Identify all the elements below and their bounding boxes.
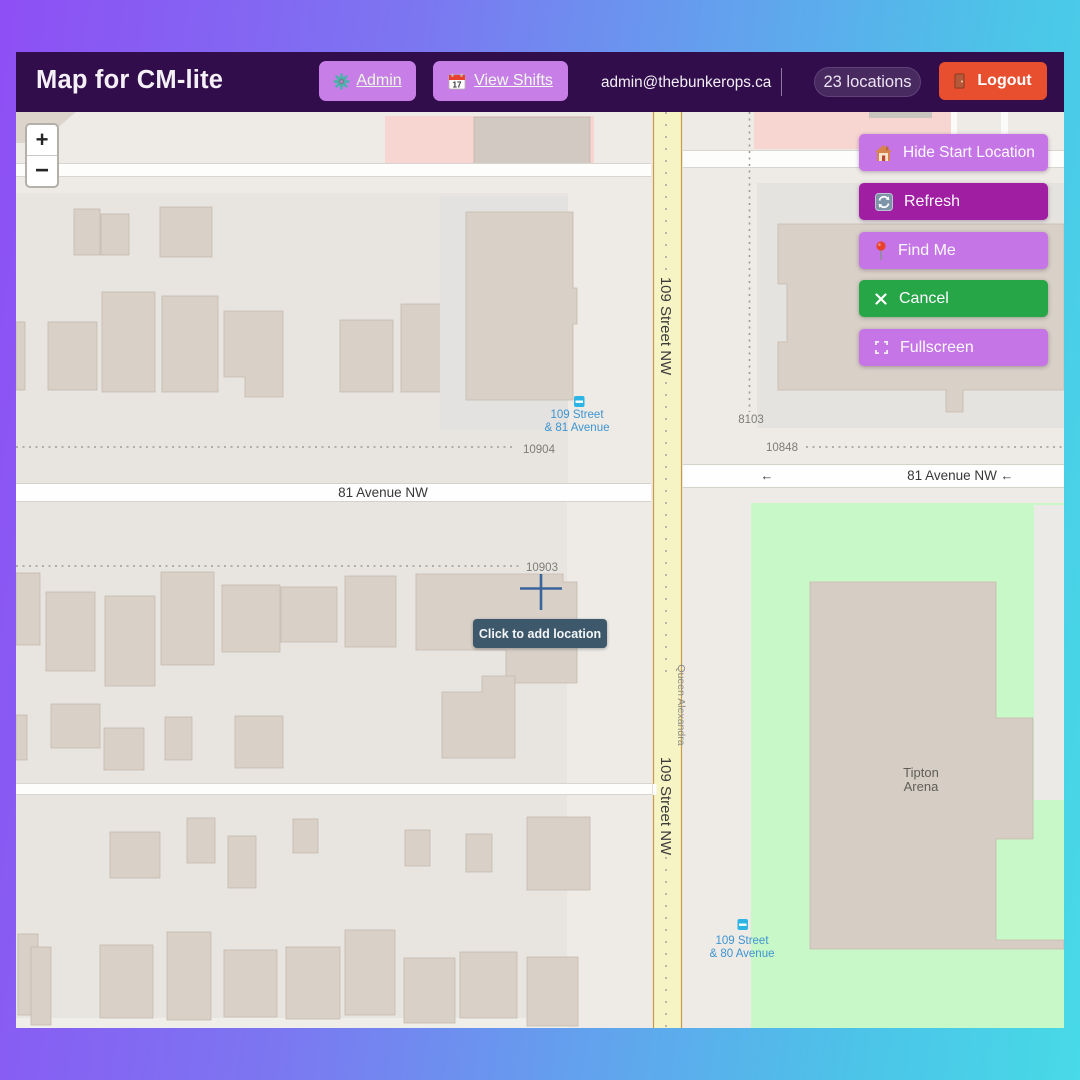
svg-text:←: ← (1001, 468, 1014, 483)
svg-text:109 Street NW: 109 Street NW (657, 277, 674, 376)
svg-text:Queen Alexandra: Queen Alexandra (675, 664, 687, 745)
svg-text:109 Street: 109 Street (715, 935, 769, 947)
svg-text:←: ← (761, 468, 774, 483)
svg-text:17: 17 (453, 80, 462, 89)
svg-text:& 80 Avenue: & 80 Avenue (709, 948, 774, 960)
svg-text:Arena: Arena (904, 779, 939, 794)
svg-text:10848: 10848 (766, 442, 798, 454)
svg-text:109 Street: 109 Street (550, 409, 604, 421)
svg-text:109 Street NW: 109 Street NW (657, 757, 674, 856)
svg-text:10904: 10904 (523, 444, 556, 456)
svg-text:& 81 Avenue: & 81 Avenue (544, 422, 609, 434)
svg-text:81 Avenue NW: 81 Avenue NW (907, 468, 997, 483)
svg-text:Tipton: Tipton (903, 765, 939, 780)
svg-text:8103: 8103 (738, 414, 764, 426)
svg-text:81 Avenue NW: 81 Avenue NW (338, 485, 428, 500)
svg-text:10903: 10903 (526, 562, 558, 574)
